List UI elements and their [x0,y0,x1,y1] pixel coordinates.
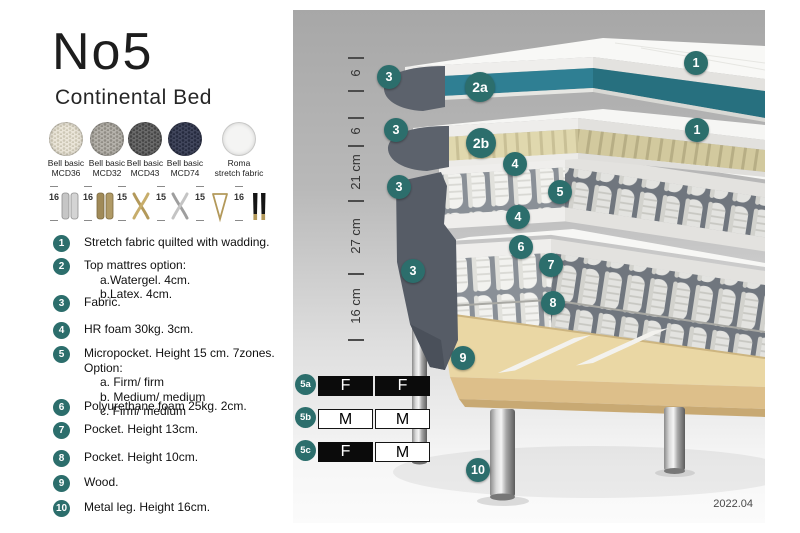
spec-text: Fabric. [84,295,121,312]
spec-number-badge: 4 [53,322,70,339]
fabric-swatch-mcd36 [49,122,83,156]
spec-text: Wood. [84,475,118,492]
diagram-badge-3: 3 [387,175,411,199]
diagram-badge-9: 9 [451,346,475,370]
spec-number-badge: 6 [53,399,70,416]
ruler-label: 16 cm [348,279,364,333]
spec-number-badge: 7 [53,422,70,439]
leg-tick [196,220,204,221]
spec-text: HR foam 30kg. 3cm. [84,322,193,339]
spec-item: 3 Fabric. [53,295,293,312]
diagram-badge-4: 4 [503,152,527,176]
fabric-code: stretch fabric [215,168,264,178]
spec-number-badge: 2 [53,258,70,275]
bed-diagram-panel: 6 6 21 cm 27 cm 16 cm 1 3 2a 1 3 2b 4 5 … [293,10,765,523]
diagram-badge-4: 4 [506,205,530,229]
spec-text: Pocket. Height 10cm. [84,450,198,467]
page-subtitle: Continental Bed [55,86,212,110]
firmness-badge-5a: 5a [295,374,316,395]
leg-height: 15 [190,192,210,202]
spec-line: Micropocket. Height 15 cm. 7zones. Optio… [84,346,293,375]
spec-text: Polyurethane foam 25kg. 2cm. [84,399,247,416]
diagram-badge-7: 7 [539,253,563,277]
ruler-tick [348,200,364,202]
leg-tick [118,186,126,187]
diagram-badge-10: 10 [466,458,490,482]
firmness-cell: F [318,376,373,396]
spec-number-badge: 3 [53,295,70,312]
diagram-badge-8: 8 [541,291,565,315]
spec-number-badge: 1 [53,235,70,252]
page: No5 Continental Bed Bell basicMCD36 Bell… [0,0,800,533]
leg-icon-cross-silver [169,189,191,225]
spec-number-badge: 9 [53,475,70,492]
fabric-swatch-mcd43 [128,122,162,156]
fabric-label: Romastretch fabric [209,159,269,178]
fabric-name: Bell basic [167,158,203,168]
diagram-badge-3: 3 [384,118,408,142]
fabric-code: MCD74 [171,168,200,178]
firmness-cell: F [375,376,430,396]
diagram-badge-3: 3 [377,65,401,89]
bed-shadow [393,446,765,498]
version-label: 2022.04 [713,498,753,510]
diagram-badge-1: 1 [684,51,708,75]
ruler-tick [348,273,364,275]
leg-height: 16 [229,192,249,202]
spec-subline: a.Watergel. 4cm. [84,273,190,288]
diagram-badge-1: 1 [685,118,709,142]
spec-subline: a. Firm/ firm [84,375,293,390]
spec-number-badge: 8 [53,450,70,467]
spec-number-badge: 10 [53,500,70,517]
leg-icon-cylinder-brass [94,189,116,225]
firmness-cell: M [375,409,430,429]
leg-tick [157,186,165,187]
spec-item: 8 Pocket. Height 10cm. [53,450,293,467]
bed-watergel-layer [384,38,765,122]
spec-text: Metal leg. Height 16cm. [84,500,210,517]
leg-tick [157,220,165,221]
diagram-badge-5: 5 [548,180,572,204]
spec-line: Top mattres option: [84,258,190,273]
diagram-badge-6: 6 [509,235,533,259]
page-title: No5 [52,22,153,82]
firmness-badge-5c: 5c [295,440,316,461]
fabric-label: Bell basicMCD74 [155,159,215,178]
spec-item: 7 Pocket. Height 13cm. [53,422,293,439]
firmness-cell: M [318,409,373,429]
leg-tick [84,220,92,221]
diagram-badge-3: 3 [401,259,425,283]
leg-tick [50,186,58,187]
firmness-badge-5b: 5b [295,407,316,428]
firmness-row: M M [318,409,430,429]
spec-number-badge: 5 [53,346,70,363]
diagram-badge-2a: 2a [465,72,495,102]
ruler-label: 27 cm [348,209,364,263]
fabric-swatch-roma [222,122,256,156]
leg-icon-tapered-black-gold [248,189,270,225]
ruler-tick [348,339,364,341]
diagram-badge-2b: 2b [466,128,496,158]
ruler-label: 21 cm [348,145,364,199]
firmness-cell: M [375,442,430,462]
leg-height: 15 [151,192,171,202]
fabric-swatch-mcd74 [168,122,202,156]
leg-icon-cross-gold [130,189,152,225]
spec-text: Stretch fabric quilted with wadding. [84,235,269,252]
leg-tick [118,220,126,221]
ruler-label: 6 [348,46,364,100]
spec-item: 1 Stretch fabric quilted with wadding. [53,235,293,252]
firmness-cell: F [318,442,373,462]
leg-tick [235,220,243,221]
fabric-swatch-mcd32 [90,122,124,156]
firmness-row: F M [318,442,430,462]
spec-item: 4 HR foam 30kg. 3cm. [53,322,293,339]
leg-tick [235,186,243,187]
spec-text: Pocket. Height 13cm. [84,422,198,439]
leg-icon-cylinder-silver [59,189,81,225]
spec-item: 6 Polyurethane foam 25kg. 2cm. [53,399,293,416]
leg-tick [50,220,58,221]
spec-item: 10 Metal leg. Height 16cm. [53,500,293,517]
fabric-name: Roma [228,158,251,168]
spec-item: 9 Wood. [53,475,293,492]
leg-icon-hairpin-gold [209,189,231,225]
firmness-row: F F [318,376,430,396]
leg-tick [196,186,204,187]
leg-tick [84,186,92,187]
